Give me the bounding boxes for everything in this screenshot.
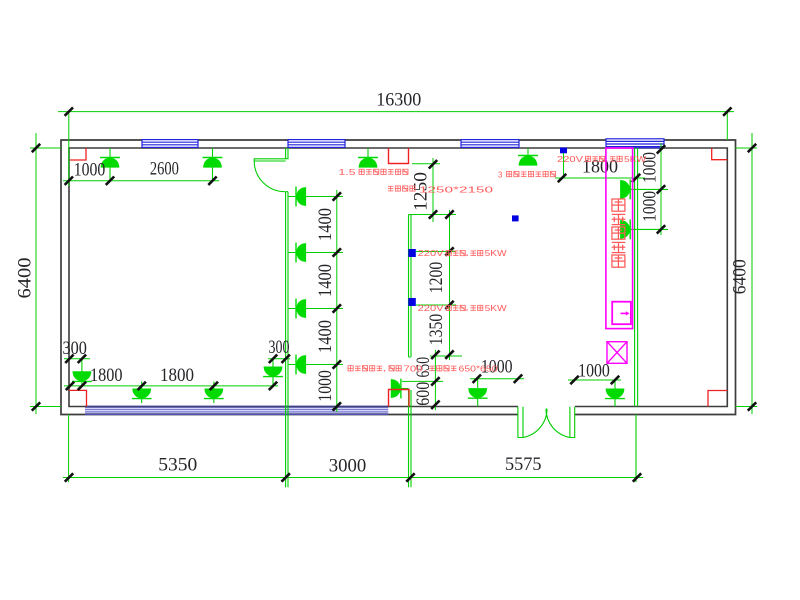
svg-text:650*650: 650*650 bbox=[459, 365, 499, 374]
svg-text:6400: 6400 bbox=[15, 258, 36, 299]
svg-text:3: 3 bbox=[498, 170, 503, 179]
svg-text:5KW: 5KW bbox=[624, 155, 647, 164]
svg-text:700: 700 bbox=[404, 365, 424, 374]
svg-text:2600: 2600 bbox=[150, 159, 179, 180]
svg-text:16300: 16300 bbox=[376, 90, 421, 111]
svg-text:600: 600 bbox=[413, 382, 434, 406]
svg-text:220V: 220V bbox=[418, 249, 445, 258]
svg-text:1000: 1000 bbox=[315, 370, 336, 401]
svg-text:1000: 1000 bbox=[578, 361, 610, 382]
svg-text:1400: 1400 bbox=[315, 320, 336, 353]
svg-text:5KW: 5KW bbox=[485, 249, 508, 258]
svg-text:1400: 1400 bbox=[315, 208, 336, 241]
svg-text:1400: 1400 bbox=[315, 264, 336, 297]
svg-text:220V: 220V bbox=[418, 304, 445, 313]
svg-text:300: 300 bbox=[269, 337, 290, 358]
svg-text:1250*2150: 1250*2150 bbox=[419, 185, 494, 194]
svg-text:1800: 1800 bbox=[160, 365, 194, 386]
svg-text:5350: 5350 bbox=[158, 455, 197, 476]
svg-text:1000: 1000 bbox=[74, 160, 106, 181]
svg-text:1.5: 1.5 bbox=[339, 168, 357, 177]
svg-text:1800: 1800 bbox=[90, 365, 123, 386]
svg-text:6400: 6400 bbox=[729, 259, 750, 294]
svg-text:300: 300 bbox=[63, 338, 87, 359]
svg-text:1350: 1350 bbox=[426, 314, 447, 345]
svg-text:5575: 5575 bbox=[505, 454, 542, 475]
svg-text:1200: 1200 bbox=[426, 262, 447, 293]
svg-text:5KW: 5KW bbox=[485, 304, 508, 313]
svg-text:3000: 3000 bbox=[329, 455, 367, 476]
svg-text:220V: 220V bbox=[557, 155, 584, 164]
svg-text:1000: 1000 bbox=[640, 191, 661, 222]
